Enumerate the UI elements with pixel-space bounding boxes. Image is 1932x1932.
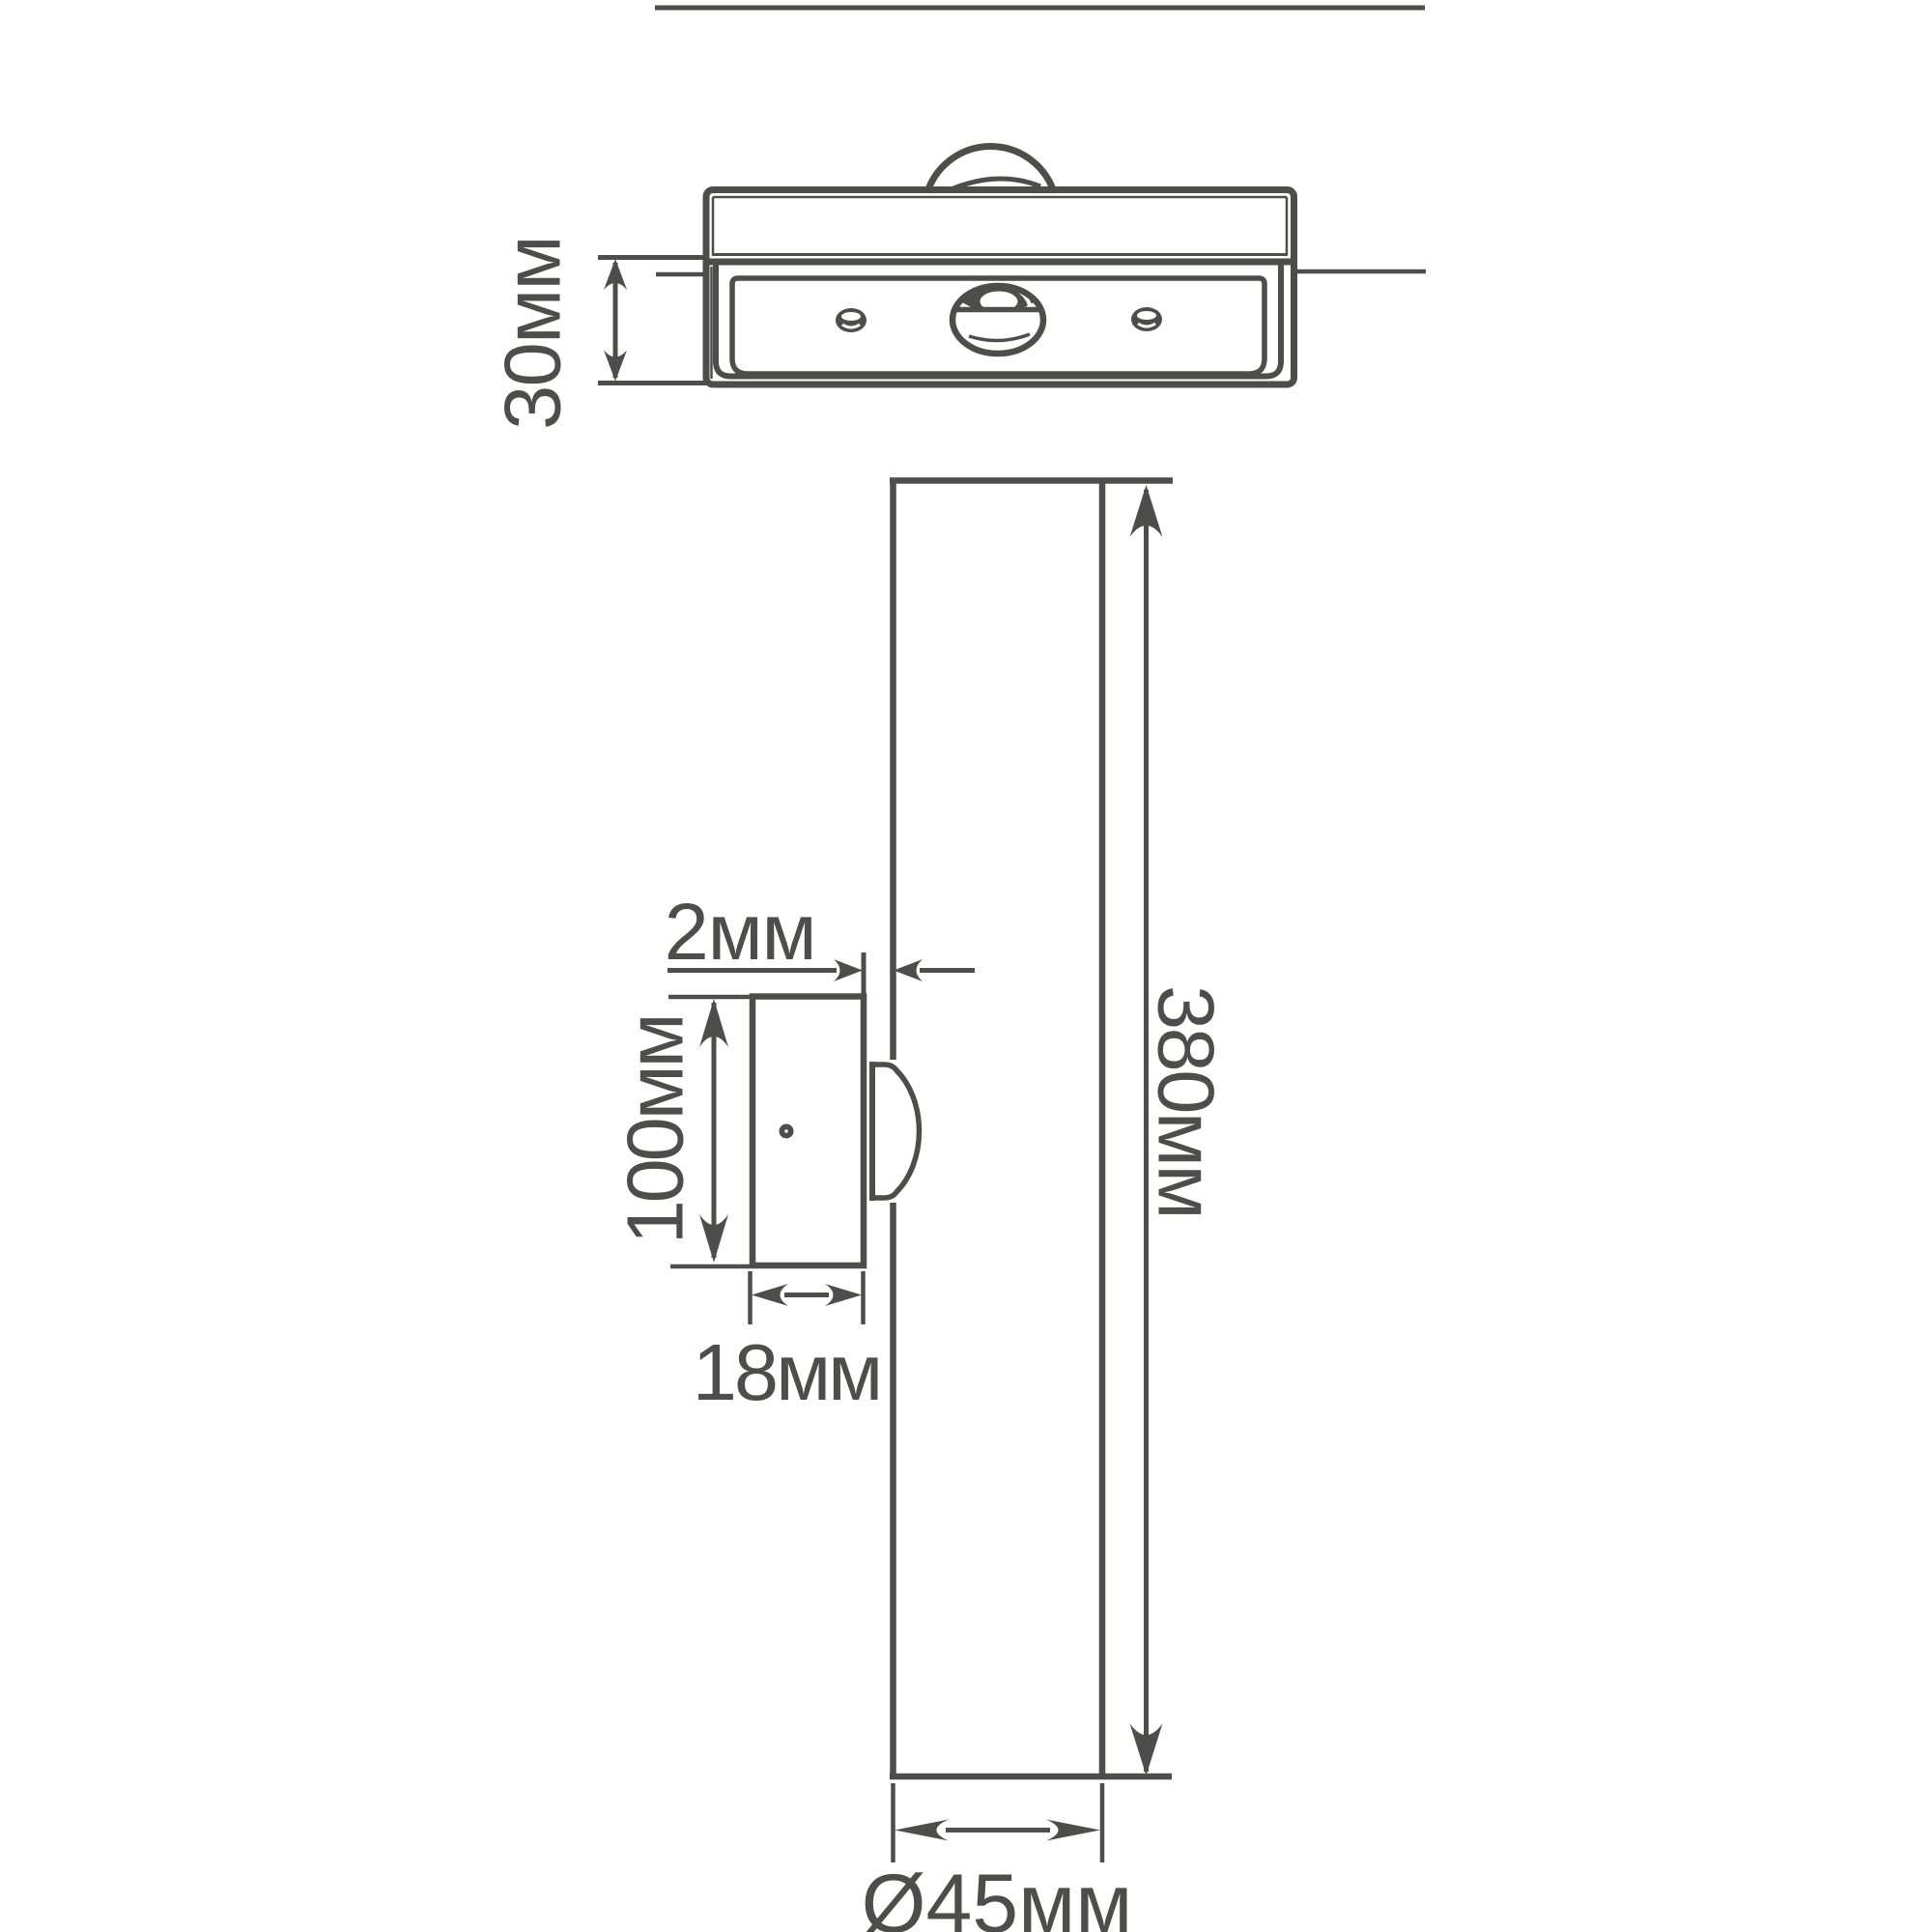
svg-text:100мм: 100мм xyxy=(611,1016,700,1245)
svg-text:Ø45мм: Ø45мм xyxy=(862,1858,1133,1932)
svg-text:30мм: 30мм xyxy=(488,237,578,430)
svg-text:18мм: 18мм xyxy=(693,1327,880,1417)
svg-text:2мм: 2мм xyxy=(665,887,816,977)
svg-text:380мм: 380мм xyxy=(1142,985,1232,1217)
